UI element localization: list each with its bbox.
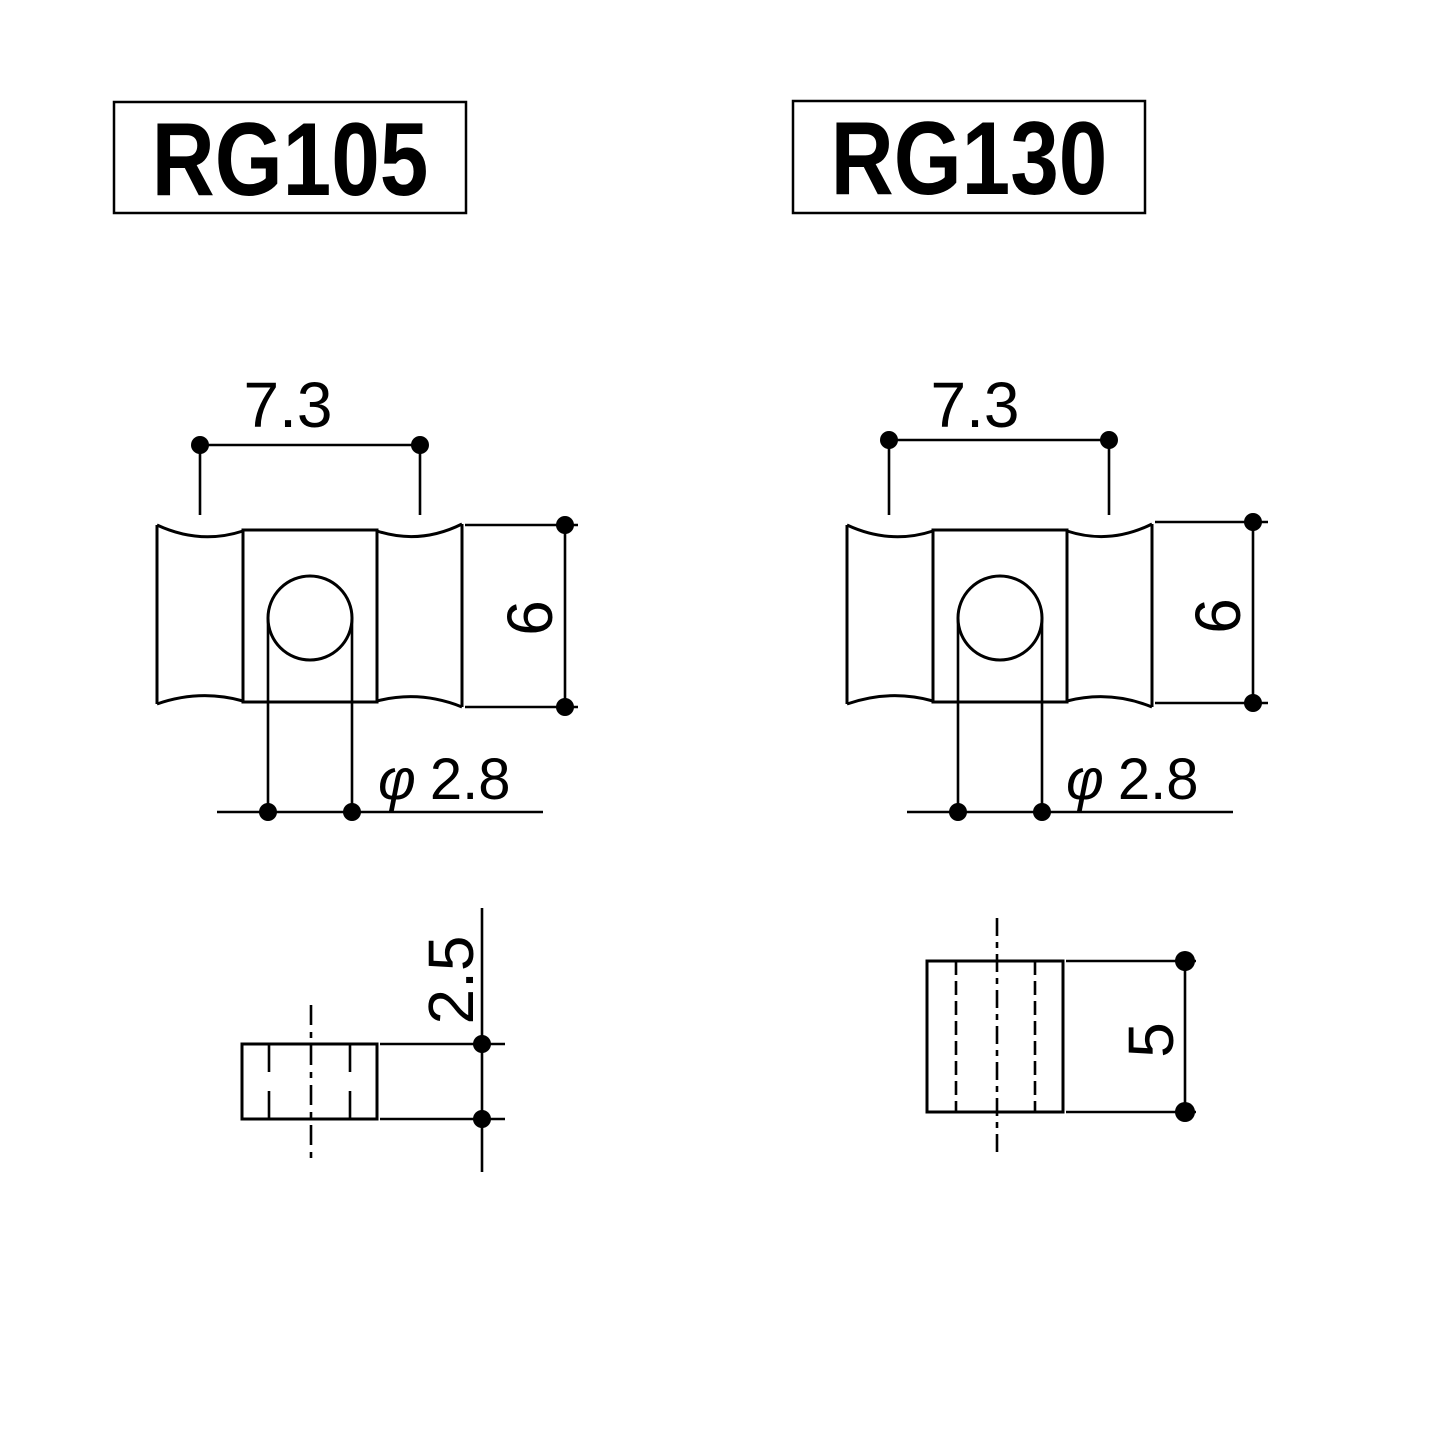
string-hole bbox=[958, 576, 1042, 660]
rg130-part-outline bbox=[847, 524, 1152, 707]
diameter-symbol: φ bbox=[378, 747, 416, 812]
string-hole bbox=[268, 576, 352, 660]
dim-endpoint-dot bbox=[880, 431, 898, 449]
part-top-right-curve bbox=[377, 524, 462, 537]
rg105-top-view: 7.3 6 bbox=[157, 369, 578, 821]
part-bottom-right-curve bbox=[1067, 697, 1152, 707]
rg130-hole-dimension: φ2.8 bbox=[907, 618, 1233, 821]
part-top-left-curve bbox=[157, 525, 243, 537]
rg130-thickness-dimension: 5 bbox=[1066, 951, 1196, 1122]
rg130-height-dimension: 6 bbox=[1155, 513, 1268, 712]
rg105-thickness-dimension: 2.5 bbox=[380, 908, 505, 1172]
rg105-height-dimension: 6 bbox=[465, 516, 578, 716]
part-bottom-left-curve bbox=[847, 696, 933, 704]
rg130-model-text: RG130 bbox=[831, 101, 1108, 217]
dim-endpoint-dot bbox=[1244, 694, 1262, 712]
rg130-width-dimension: 7.3 bbox=[880, 369, 1118, 515]
dim-endpoint-dot bbox=[1244, 513, 1262, 531]
dim-endpoint-dot bbox=[949, 803, 967, 821]
rg130-thickness-dim-text: 5 bbox=[1115, 1022, 1187, 1058]
slot-hidden-lines bbox=[269, 1044, 350, 1119]
dim-endpoint-dot bbox=[473, 1110, 491, 1128]
part-center-block bbox=[933, 530, 1067, 702]
slot-hidden-lines bbox=[956, 961, 1035, 1112]
rg105-height-dim-text: 6 bbox=[494, 600, 566, 636]
rg105-width-dimension: 7.3 bbox=[191, 369, 429, 515]
part-bottom-right-curve bbox=[377, 697, 462, 707]
dim-endpoint-dot bbox=[191, 436, 209, 454]
rg130-hole-dim-text: φ2.8 bbox=[1066, 747, 1198, 812]
rg130-label: RG130 bbox=[793, 101, 1145, 217]
rg130-top-view: 7.3 6 bbox=[847, 369, 1268, 821]
dim-endpoint-dot bbox=[556, 516, 574, 534]
part-center-block bbox=[243, 530, 377, 702]
dim-endpoint-dot bbox=[473, 1035, 491, 1053]
drawing-sheet: RG105 RG130 7.3 bbox=[0, 0, 1445, 1445]
side-profile bbox=[927, 961, 1063, 1112]
part-top-right-curve bbox=[1067, 524, 1152, 537]
rg105-part-outline bbox=[157, 524, 462, 707]
rg105-hole-dim-text: φ2.8 bbox=[378, 747, 510, 812]
dim-endpoint-dot bbox=[343, 803, 361, 821]
part-top-left-curve bbox=[847, 525, 933, 537]
rg105-model-text: RG105 bbox=[152, 102, 429, 218]
hole-diameter-value: 2.8 bbox=[1118, 747, 1199, 812]
rg105-thickness-dim-text: 2.5 bbox=[415, 936, 487, 1025]
dim-endpoint-dot bbox=[259, 803, 277, 821]
dim-endpoint-dot bbox=[1175, 951, 1195, 971]
rg130-width-dim-text: 7.3 bbox=[931, 369, 1020, 441]
side-profile bbox=[242, 1044, 377, 1119]
dim-endpoint-dot bbox=[1175, 1102, 1195, 1122]
hole-diameter-value: 2.8 bbox=[430, 747, 511, 812]
rg105-width-dim-text: 7.3 bbox=[244, 369, 333, 441]
extension-lines bbox=[200, 445, 420, 515]
extension-lines bbox=[889, 440, 1109, 515]
rg105-label: RG105 bbox=[114, 102, 466, 218]
part-bottom-left-curve bbox=[157, 696, 243, 704]
rg105-hole-dimension: φ2.8 bbox=[217, 618, 543, 821]
dim-endpoint-dot bbox=[556, 698, 574, 716]
dim-endpoint-dot bbox=[411, 436, 429, 454]
diameter-symbol: φ bbox=[1066, 747, 1104, 812]
rg105-side-view: 2.5 bbox=[242, 908, 505, 1172]
rg130-height-dim-text: 6 bbox=[1182, 598, 1254, 634]
rg130-side-view: 5 bbox=[927, 918, 1196, 1153]
dim-endpoint-dot bbox=[1100, 431, 1118, 449]
extension-lines bbox=[380, 1044, 505, 1119]
dim-endpoint-dot bbox=[1033, 803, 1051, 821]
drawing-canvas: RG105 RG130 7.3 bbox=[0, 0, 1445, 1445]
